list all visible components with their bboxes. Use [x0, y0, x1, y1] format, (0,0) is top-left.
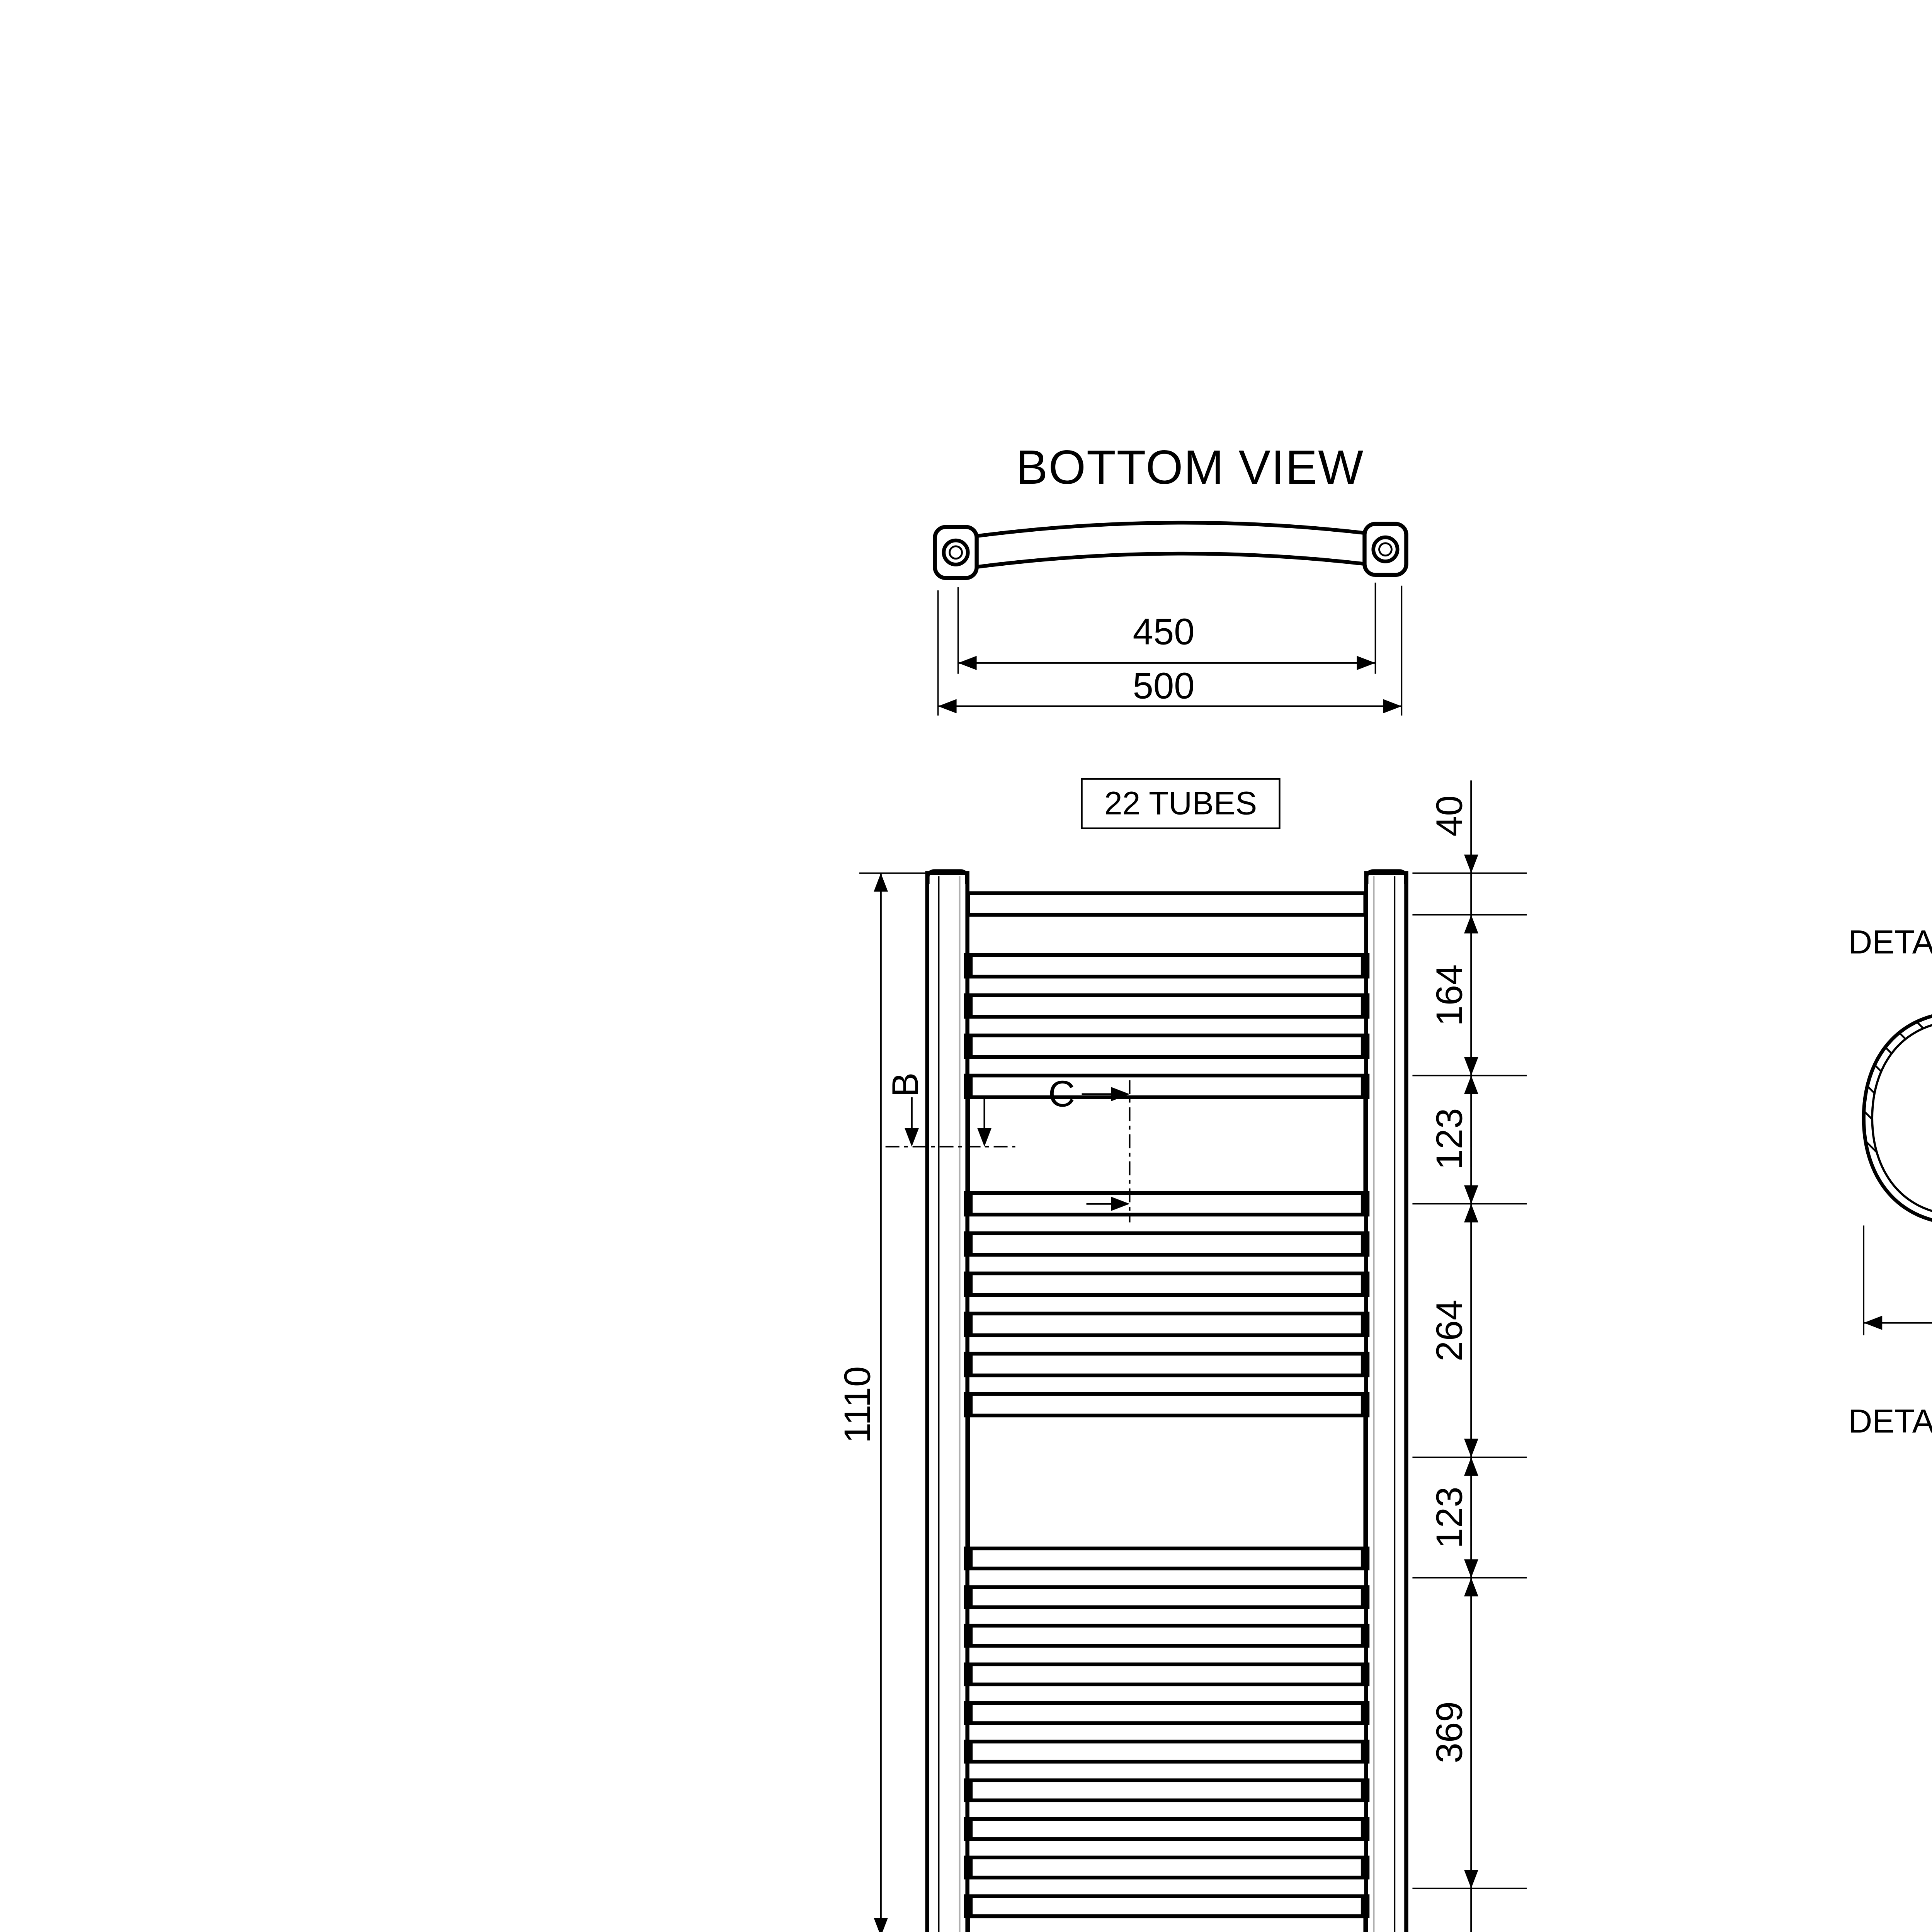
- tube-row: [966, 1394, 1368, 1415]
- detail-b-profile-wall-hatch: [1864, 1012, 1932, 1224]
- dim-chain-arrow-up: [1464, 1457, 1478, 1476]
- bottom-view-band-top-edge: [975, 523, 1366, 536]
- dim-1110: 1110: [837, 873, 929, 1932]
- chain-label-369: 369: [1429, 1701, 1470, 1763]
- section-b-label: B: [885, 1073, 926, 1097]
- chain-label-264: 264: [1429, 1299, 1470, 1361]
- dim-chain-arrow-down: [1464, 1185, 1478, 1204]
- bottom-view-title: BOTTOM VIEW: [1016, 441, 1364, 494]
- tube-row: [966, 1626, 1368, 1646]
- tube-rows: [966, 893, 1368, 1932]
- dim-1110-label: 1110: [837, 1366, 878, 1443]
- right-rail: [1366, 871, 1406, 1932]
- dim-chain-arrow-up: [1464, 915, 1478, 934]
- tube-row: [966, 1076, 1368, 1097]
- dim-chain-arrow-up: [1464, 1076, 1478, 1094]
- dim-450-arrow-left: [958, 656, 977, 670]
- tube-row: [966, 1354, 1368, 1375]
- tube-row: [966, 1703, 1368, 1723]
- bottom-view: BOTTOM VIEW 450 500: [935, 441, 1406, 716]
- dim-chain-arrow-down: [1464, 1439, 1478, 1457]
- dim-chain-right: 40 164 123 264 123 369 45: [1412, 781, 1527, 1932]
- section-b-arrow-2: [977, 1128, 992, 1147]
- tubes-label: 22 TUBES: [1104, 785, 1257, 821]
- dim-500-arrow-left: [938, 699, 957, 713]
- dim-chain-arrow-down: [1464, 1057, 1478, 1076]
- tube-row: [966, 995, 1368, 1017]
- page: { "bottom_view": { "title": "BOTTOM VIEW…: [0, 0, 1932, 1932]
- tube-row-wide: [968, 1916, 1366, 1932]
- bottom-view-band-bottom-edge: [975, 554, 1366, 567]
- dim-chain-arrow-down: [1464, 1559, 1478, 1578]
- tube-row: [966, 1896, 1368, 1916]
- dim-500-arrow-right: [1383, 699, 1401, 713]
- detail-c-title: DETAIL C - Tube Cut: [1848, 1403, 1932, 1440]
- tube-row: [966, 1664, 1368, 1684]
- tube-row: [966, 1313, 1368, 1335]
- dim-450-arrow-right: [1357, 656, 1375, 670]
- chain-label-40: 40: [1429, 795, 1470, 837]
- drawing-canvas: BOTTOM VIEW 450 500 22 TUBES: [0, 0, 1932, 1932]
- detail-c: DETAIL C - Tube Cut ⌀ 22: [1848, 1403, 1932, 1763]
- tube-row: [966, 1036, 1368, 1057]
- chain-label-164: 164: [1429, 964, 1470, 1026]
- detail-b: DETAIL B - Profile Cut 30 40: [1848, 924, 1932, 1335]
- detail-b-title: DETAIL B - Profile Cut: [1848, 924, 1932, 961]
- dim-chain-arrow-down: [1464, 855, 1478, 873]
- dim-chain-arrow-up: [1464, 1204, 1478, 1223]
- tube-row: [966, 1193, 1368, 1215]
- dim-500-label: 500: [1133, 665, 1194, 707]
- left-rail-body: [927, 873, 968, 1932]
- section-b-arrow-1: [905, 1128, 919, 1147]
- tube-row: [966, 1819, 1368, 1839]
- tube-row: [966, 1548, 1368, 1568]
- tube-row: [966, 1273, 1368, 1295]
- tube-row: [966, 1742, 1368, 1762]
- chain-label-123a: 123: [1429, 1108, 1470, 1170]
- dim-1110-arrow-bottom: [874, 1918, 888, 1932]
- dim-chain-arrow-up: [1464, 1578, 1478, 1596]
- tube-row: [966, 955, 1368, 977]
- tube-row: [966, 1857, 1368, 1878]
- dim-40b-arrow-left: [1864, 1316, 1882, 1330]
- right-rail-body: [1366, 873, 1406, 1932]
- bottom-view-right-cap-hole: [1373, 537, 1397, 561]
- left-rail: [927, 871, 968, 1932]
- bottom-view-left-cap-hole: [944, 541, 968, 565]
- tube-row-wide: [968, 893, 1366, 915]
- tube-row: [966, 1780, 1368, 1800]
- dim-chain-arrow-down: [1464, 1870, 1478, 1888]
- dim-1110-arrow-top: [874, 873, 888, 892]
- chain-label-123b: 123: [1429, 1486, 1470, 1548]
- dim-450-label: 450: [1133, 611, 1194, 653]
- tube-row: [966, 1233, 1368, 1255]
- front-view: 22 TUBES B C: [837, 779, 1527, 1932]
- section-c-label: C: [1048, 1073, 1075, 1115]
- tube-row: [966, 1587, 1368, 1607]
